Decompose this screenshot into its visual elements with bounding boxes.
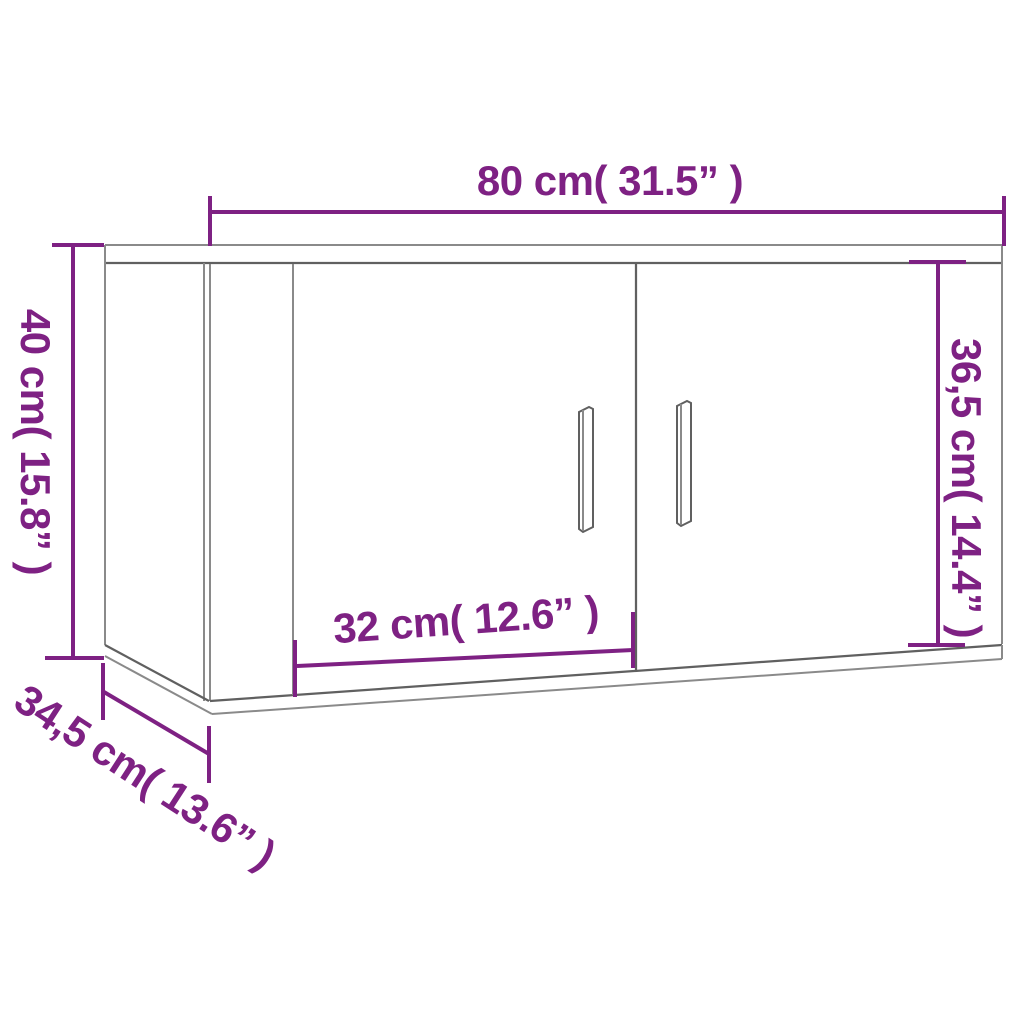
door-width-line [297,650,633,666]
cabinet-outline [105,245,1004,714]
width-dimension-label: 80 cm( 31.5” ) [450,159,770,203]
left-door-handle [579,407,593,532]
right-door-handle [677,401,691,526]
side-bottom-band [105,656,212,714]
right-handle-body [677,401,691,526]
front-bottom-edge [210,645,1002,701]
left-handle-body [579,407,593,532]
interior-height-dimension-label: 36,5 cm( 14.4” ) [944,338,988,628]
dimension-diagram: 80 cm( 31.5” ) 40 cm( 15.8” ) 36,5 cm( 1… [0,0,1024,1024]
height-dimension-label: 40 cm( 15.8” ) [13,302,57,582]
side-bottom-edge [105,645,209,701]
front-bottom-band [212,659,1002,714]
cabinet-drawing [0,0,1024,1024]
